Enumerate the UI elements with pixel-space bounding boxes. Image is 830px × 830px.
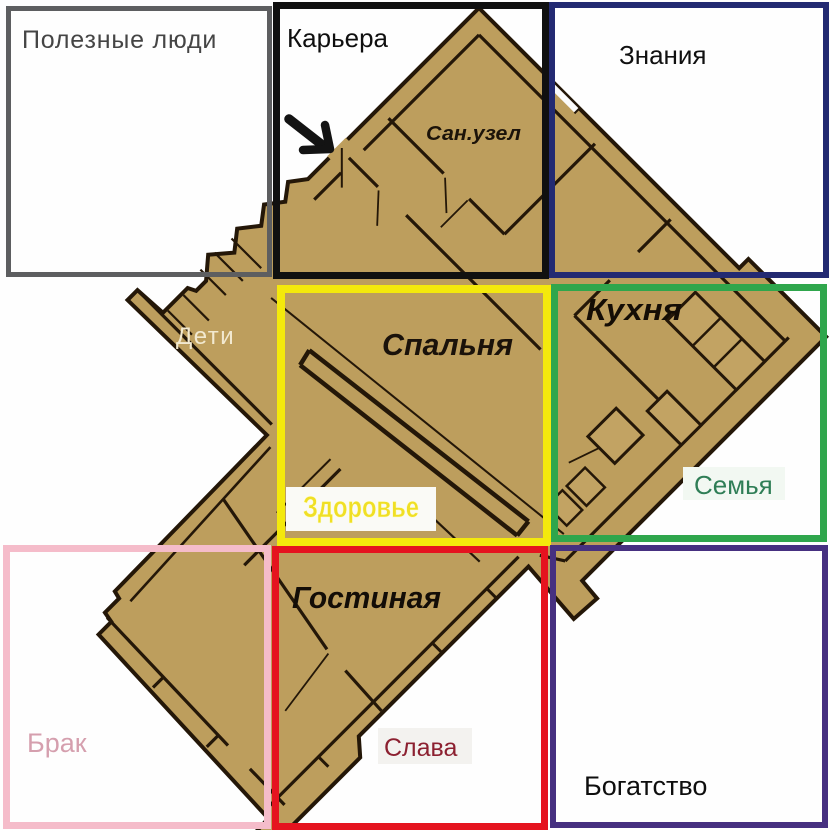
svg-text:Здоровье: Здоровье <box>303 491 419 524</box>
svg-text:Полезные люди: Полезные люди <box>22 26 217 54</box>
svg-text:Знания: Знания <box>619 40 706 70</box>
svg-text:Слава: Слава <box>384 734 458 762</box>
svg-text:Семья: Семья <box>694 470 773 500</box>
svg-text:Карьера: Карьера <box>287 23 389 53</box>
svg-text:Брак: Брак <box>27 728 87 758</box>
svg-text:Кухня: Кухня <box>586 292 682 327</box>
svg-text:Гостиная: Гостиная <box>292 580 441 615</box>
svg-text:Дети: Дети <box>176 323 235 350</box>
svg-text:Сан.узел: Сан.узел <box>426 123 522 145</box>
svg-text:Спальня: Спальня <box>382 327 513 362</box>
svg-text:Богатство: Богатство <box>584 771 707 801</box>
